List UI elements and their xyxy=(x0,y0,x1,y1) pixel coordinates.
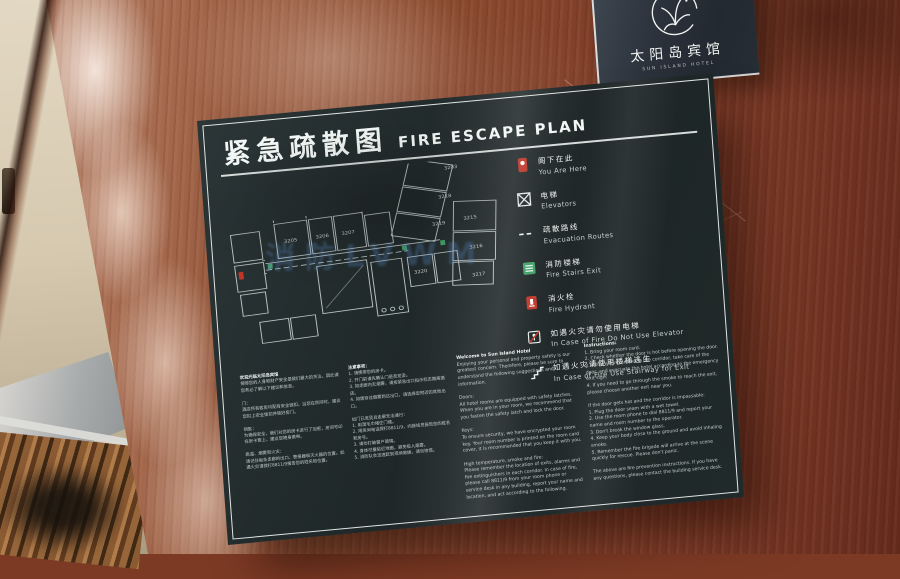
room-label: 3206 xyxy=(315,233,329,240)
stairs-marker xyxy=(402,245,407,251)
hotel-lily-logo-icon xyxy=(647,0,703,40)
column-cn-welcome: 欢迎光临太阳岛宾馆 保障您的人身和财产安全是我们最大的关注，因此请您务必了解以下… xyxy=(240,367,350,522)
fire-stairs-icon xyxy=(520,260,538,278)
column-cn-instructions: 注意事项： 1. 请携带您的房卡。 2. 开门前请先确认门是否发烫。 3. 如走… xyxy=(348,357,458,512)
floor-plan: 3203 3218 3219 3215 3216 3217 3205 3206 … xyxy=(217,154,520,370)
legend-item-elevators: 电梯Elevators xyxy=(515,174,712,213)
stairs-marker xyxy=(267,264,272,270)
room-label: 3207 xyxy=(341,230,355,237)
legend-item-fire-hydrant: 消火栓Fire Hydrant xyxy=(523,277,720,316)
room-label: 3218 xyxy=(438,193,452,200)
fire-hydrant-icon xyxy=(523,294,541,312)
room-label: 3203 xyxy=(444,164,458,171)
elevator-icon xyxy=(515,191,533,209)
room-label: 3205 xyxy=(284,238,298,245)
fire-escape-plan-sign: 紧急疏散图 FIRE ESCAPE PLAN 消防LVWM xyxy=(197,73,744,545)
room-label: 3219 xyxy=(432,220,446,227)
room-label: 3216 xyxy=(469,243,483,250)
title-en: FIRE ESCAPE PLAN xyxy=(397,116,587,152)
title-cn: 紧急疏散图 xyxy=(222,117,389,171)
floor-shadow xyxy=(0,462,126,554)
no-elevator-icon xyxy=(525,328,543,346)
room-label: 3217 xyxy=(472,271,486,278)
legend-item-evacuation-routes: 疏散路线Evacuation Routes xyxy=(518,209,715,248)
route-dash-icon xyxy=(518,225,536,243)
stairs-marker xyxy=(440,240,445,246)
column-en-instructions: Instructions: 1. Bring your room card. 2… xyxy=(584,332,729,491)
legend-item-fire-stairs: 消防楼梯Fire Stairs Exit xyxy=(520,243,717,282)
column-en-welcome: Welcome to Sun Island Hotel Enjoying you… xyxy=(456,345,585,502)
you-are-here-icon xyxy=(513,156,531,174)
room-label: 3215 xyxy=(463,214,477,221)
room-label: 3220 xyxy=(414,268,428,275)
you-are-here-marker xyxy=(238,272,244,280)
